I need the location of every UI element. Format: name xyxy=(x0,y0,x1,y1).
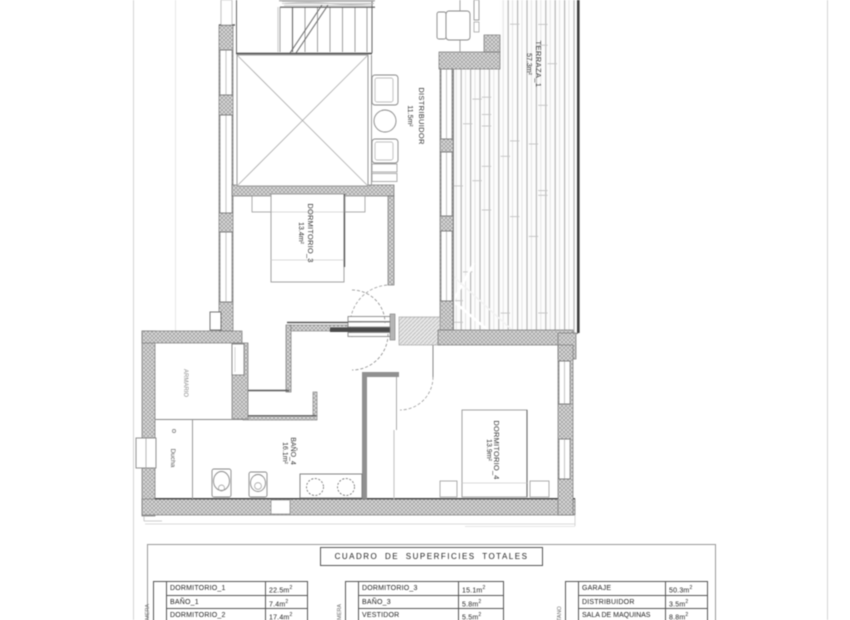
svg-text:TERRAZA_1: TERRAZA_1 xyxy=(534,41,543,88)
svg-text:11.5m²: 11.5m² xyxy=(406,105,413,127)
svg-text:Ducha: Ducha xyxy=(169,449,176,468)
svg-text:13.9m²: 13.9m² xyxy=(485,439,492,461)
svg-text:DORMITORIO_4: DORMITORIO_4 xyxy=(492,420,501,479)
svg-text:57.3m²: 57.3m² xyxy=(525,53,532,75)
svg-text:BAÑO_4: BAÑO_4 xyxy=(289,437,298,465)
svg-text:ARMARIO: ARMARIO xyxy=(182,369,188,397)
svg-text:DISTRIBUIDOR: DISTRIBUIDOR xyxy=(417,87,426,145)
svg-text:16.1m²: 16.1m² xyxy=(281,442,288,464)
svg-text:DORMITORIO_3: DORMITORIO_3 xyxy=(306,203,315,262)
svg-text:13.4m²: 13.4m² xyxy=(297,222,304,244)
